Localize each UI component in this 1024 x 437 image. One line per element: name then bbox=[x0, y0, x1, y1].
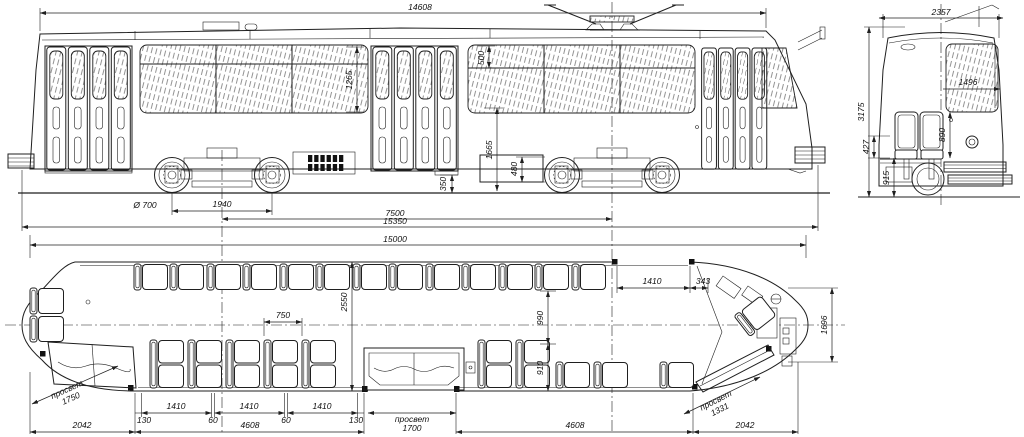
dim-floor-height: 915 bbox=[881, 171, 891, 185]
dim-end-width: 2357 bbox=[931, 7, 951, 17]
dim-rear-overhang: 2042 bbox=[735, 420, 755, 430]
dim-bay-margin-right: 130 bbox=[349, 415, 363, 425]
side-view: 14608 1265 500 1665 480 350 Ø 700 1940 7… bbox=[8, 2, 830, 258]
middle-door-pocket bbox=[364, 348, 475, 390]
dim-bay-gap-2: 60 bbox=[281, 415, 291, 425]
dim-bogie-wheelbase: 1940 bbox=[213, 199, 232, 209]
end-view: 2357 3175 1496 890 427 915 bbox=[856, 5, 1020, 197]
dim-seat-pitch: 750 bbox=[276, 310, 290, 320]
tram-blueprint-drawing: 14608 1265 500 1665 480 350 Ø 700 1940 7… bbox=[0, 0, 1024, 437]
door-rear bbox=[702, 48, 767, 169]
dim-seat-height: 427 bbox=[861, 140, 871, 154]
side-dimensions: 14608 1265 500 1665 480 350 Ø 700 1940 7… bbox=[22, 2, 818, 258]
dim-frame-length: 15000 bbox=[383, 234, 407, 244]
window-band-rear bbox=[468, 45, 695, 113]
dim-offside-door-corner: 343 bbox=[696, 276, 710, 286]
dim-seat-back-height: 890 bbox=[937, 128, 947, 142]
dim-wheel-diameter: Ø 700 bbox=[132, 200, 156, 210]
dim-bay-window-3: 1410 bbox=[313, 401, 332, 411]
front-door-open bbox=[48, 342, 136, 388]
dim-aisle-rear: 910 bbox=[535, 361, 545, 375]
dim-window-height: 1265 bbox=[344, 70, 354, 89]
dim-rear-width: 1696 bbox=[819, 315, 829, 334]
dim-bay-gap-1: 60 bbox=[208, 415, 218, 425]
dim-front-bay-total: 4608 bbox=[241, 420, 260, 430]
dim-step-height: 350 bbox=[438, 177, 448, 191]
passenger-seats-top bbox=[134, 264, 606, 290]
dim-windshield-width: 1496 bbox=[959, 77, 978, 87]
pantograph-icon bbox=[544, 5, 684, 30]
dim-offside-door: 1410 bbox=[643, 276, 662, 286]
dim-body-length: 14608 bbox=[408, 2, 432, 12]
dim-interior-width: 2550 bbox=[339, 292, 349, 312]
roof-resistor-box bbox=[203, 22, 239, 30]
dim-overall-length: 15350 bbox=[383, 216, 407, 226]
dim-rear-bay-total: 4608 bbox=[566, 420, 585, 430]
end-roof-gear bbox=[945, 5, 999, 27]
dim-skirt-box: 480 bbox=[509, 162, 519, 176]
window-band-front bbox=[140, 45, 368, 113]
plan-view: 1410 343 1696 990 910 750 2550 1410 1410 bbox=[22, 259, 838, 434]
tram-blueprint-page: 14608 1265 500 1665 480 350 Ø 700 1940 7… bbox=[0, 0, 1024, 437]
door-middle bbox=[371, 46, 458, 175]
dim-bay-margin-left: 130 bbox=[137, 415, 151, 425]
headlight-icon bbox=[966, 136, 978, 148]
mirror-icon bbox=[798, 27, 825, 50]
dim-front-overhang: 2042 bbox=[72, 420, 92, 430]
dim-bay-window-2: 1410 bbox=[240, 401, 259, 411]
dim-sill-height: 1665 bbox=[484, 140, 494, 159]
dim-end-height: 3175 bbox=[856, 102, 866, 121]
underfloor-equipment bbox=[293, 152, 543, 182]
front-end-seats bbox=[30, 288, 90, 342]
dim-aisle-front: 990 bbox=[535, 311, 545, 325]
dim-middle-door-clearance: 1700 bbox=[403, 423, 422, 433]
door-front bbox=[45, 46, 132, 173]
dim-vent-height: 500 bbox=[476, 51, 486, 65]
dim-bay-window-1: 1410 bbox=[167, 401, 186, 411]
